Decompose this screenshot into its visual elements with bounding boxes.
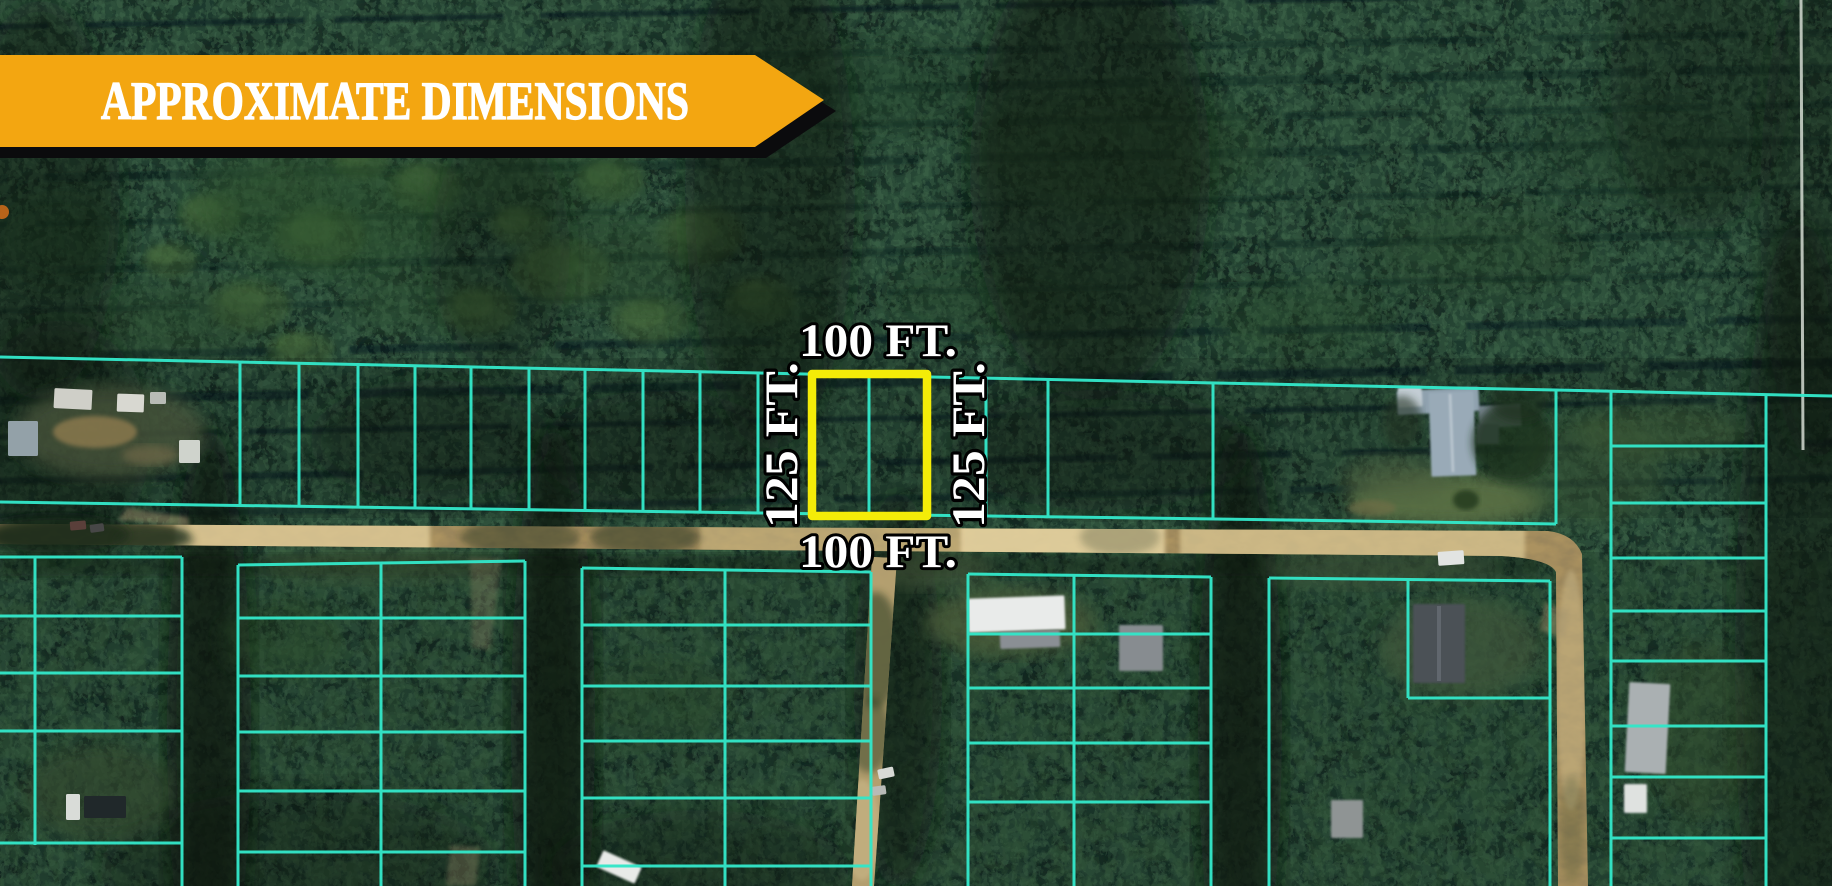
svg-text:100 FT.: 100 FT. [799, 526, 957, 578]
svg-text:125 FT.: 125 FT. [756, 362, 808, 528]
svg-text:125 FT.: 125 FT. [943, 362, 995, 528]
svg-text:APPROXIMATE DIMENSIONS: APPROXIMATE DIMENSIONS [101, 71, 689, 131]
svg-text:100 FT.: 100 FT. [799, 315, 957, 367]
